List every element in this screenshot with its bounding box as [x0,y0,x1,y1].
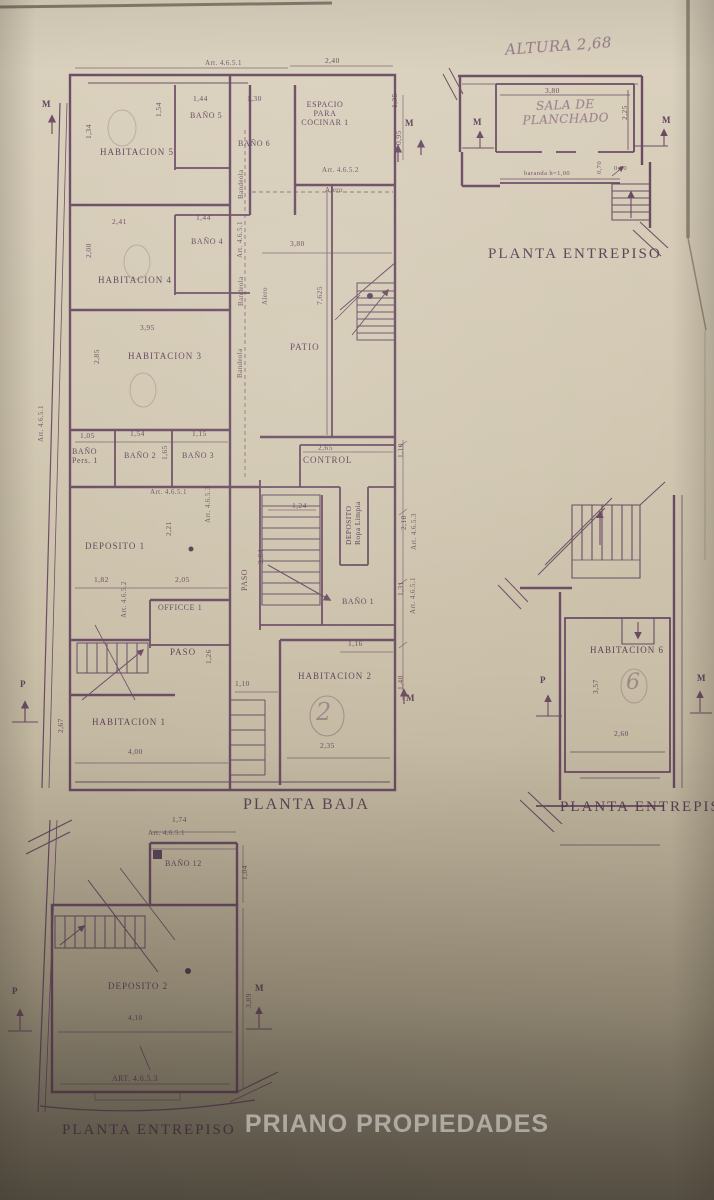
entrepiso-top-walls [443,68,668,256]
dim-label: 2,67 [56,718,65,733]
dim-label: 2,85 [92,349,101,364]
room-label-bano3: BAÑO 3 [182,451,214,460]
scanned-floorplan-photo: Art. 4.6.5.1 2,40 M HABITACION 5 1,34 1,… [0,0,714,1200]
room-label-bano-pers: BAÑO Pers. 1 [72,447,108,465]
dim-label: 1,54 [154,102,163,117]
dim-label: 1,44 [193,94,208,103]
dim-label: 1,82 [94,575,109,584]
property-line-marker: P [12,986,18,996]
medianera-marker: M [406,693,415,703]
dim-label: 1,10 [235,679,250,688]
property-line-marker: P [540,675,546,685]
dim-label: 3,95 [140,323,155,332]
dim-label: 1,04 [240,865,249,880]
dim-label: 2,05 [175,575,190,584]
medianera-marker: M [697,673,706,683]
dim-label: 1,44 [196,213,211,222]
art-code-label: Art. 4.6.5.1 [205,59,242,67]
dim-label: 1,26 [204,649,213,664]
room-label-habitacion2: HABITACION 2 [298,671,372,681]
dim-label: 0,70 [596,161,603,174]
room-label-paso-left: PASO [170,647,196,657]
medianera-marker: M [662,115,671,125]
dim-label: 2,21 [164,521,173,536]
dim-label: 1,30 [247,94,262,103]
dim-label: 1,40 [396,675,405,690]
entrepiso-mid-walls [498,482,712,845]
medianera-marker: M [255,983,264,993]
handwritten-room-label-sala-planchado: SALA DE PLANCHADO [518,97,614,128]
room-label-habitacion4: HABITACION 4 [98,275,172,285]
alero-label: Alero [261,287,269,305]
dim-label: 1,15 [192,429,207,438]
plan-caption-entrepiso-mid: PLANTA ENTREPISO [560,799,714,816]
art-code-label: Art. 4.6.5.1 [37,405,45,442]
alero-label: Alero [325,186,343,194]
dim-label: 3,57 [591,679,600,694]
medianera-marker: M [473,117,482,127]
dim-label: 1,31 [396,581,405,596]
room-label-line: Ropa Limpia [353,501,362,545]
room-label-control: CONTROL [303,455,353,465]
room-label-patio: PATIO [290,342,320,352]
art-code-label: Art. 4.6.5.3 [410,513,418,550]
dim-label: 2,00 [84,243,93,258]
dim-label: 2,40 [325,56,340,65]
dim-label: 1,16 [348,639,363,648]
dim-label: 7,625 [315,286,324,305]
bandeola-label: Bandeola [237,169,245,199]
dim-label: 1,05 [80,431,95,440]
dim-label: 3,64 [256,549,265,564]
room-label-bano6: BAÑO 6 [238,139,270,148]
art-code-label: Art. 4.6.5.1 [150,488,187,496]
room-label-bano2: BAÑO 2 [124,451,156,460]
dim-label: 3,89 [244,993,253,1008]
dim-label: 3,80 [545,86,560,95]
property-line-marker: P [20,679,26,689]
dim-label: 4,00 [128,747,143,756]
room-label-habitacion6: HABITACION 6 [590,645,664,655]
room-label-office1: OFFICCE 1 [158,603,202,612]
dim-label: 0,70 [614,165,627,172]
room-label-deposito1: DEPOSITO 1 [85,541,145,551]
dim-label: 1,54 [130,429,145,438]
baranda-label: baranda h=1,00 [524,170,570,177]
dim-label: 1,34 [84,124,93,139]
bandeola-label: Bandeola [237,276,245,306]
dim-label: 1,24 [292,501,307,510]
dim-label: 2,35 [320,741,335,750]
art-code-label: Art. 4.6.5.2 [322,166,359,174]
medianera-marker: M [42,99,51,109]
dim-label: 2,60 [614,729,629,738]
plan-caption-entrepiso-top: PLANTA ENTREPISO [488,246,662,263]
dim-label: 2,18 [399,515,408,530]
room-label-habitacion1: HABITACION 1 [92,717,166,727]
dim-label: 3,80 [290,239,305,248]
dim-label: 4,10 [128,1013,143,1022]
dim-label: 1,65 [160,445,169,460]
room-label-habitacion5: HABITACION 5 [100,147,174,157]
room-label-habitacion3: HABITACION 3 [128,351,202,361]
plan-caption-planta-baja: PLANTA BAJA [243,796,370,814]
entrepiso-bottom-walls [8,820,278,1112]
dim-label: 1,35 [390,93,399,108]
dim-label: 0,95 [394,130,403,145]
room-label-bano12: BAÑO 12 [165,859,202,868]
room-label-bano1: BAÑO 1 [342,597,374,606]
art-code-label: Art. 4.6.5.1 [236,221,244,258]
dim-label: 1,74 [172,815,187,824]
planta-baja-walls [12,66,421,790]
dim-label: 2,41 [112,217,127,226]
room-label-line: DEPOSITO [344,501,353,545]
room-label-bano4: BAÑO 4 [191,237,223,246]
realtor-watermark: PRIANO PROPIEDADES [80,1110,714,1139]
art-code-label: Art. 4.6.5.2 [120,581,128,618]
medianera-marker: M [405,118,414,128]
handwritten-room-number: 2 [316,698,332,726]
room-label-deposito-ropa: DEPOSITORopa Limpia [344,501,362,545]
dim-label: 2,25 [620,105,629,120]
handwritten-room-number: 6 [626,670,640,695]
room-label-bano5: BAÑO 5 [190,111,222,120]
art-code-label: Art. 4.6.5.3 [204,486,212,523]
art-code-label: ART. 4.6.5.3 [112,1074,158,1083]
room-label-paso-center: PASO [240,569,249,591]
dim-label: 1,10 [396,443,405,458]
room-label-deposito2: DEPOSITO 2 [108,981,168,991]
bandeola-label: Bandeola [236,348,244,378]
art-code-label: Art. 4.6.5.1 [148,829,185,837]
room-label-cocina: ESPACIO PARA COCINAR 1 [298,100,352,128]
dim-label: 2,65 [318,443,333,452]
art-code-label: Art. 4.6.5.1 [409,577,417,614]
